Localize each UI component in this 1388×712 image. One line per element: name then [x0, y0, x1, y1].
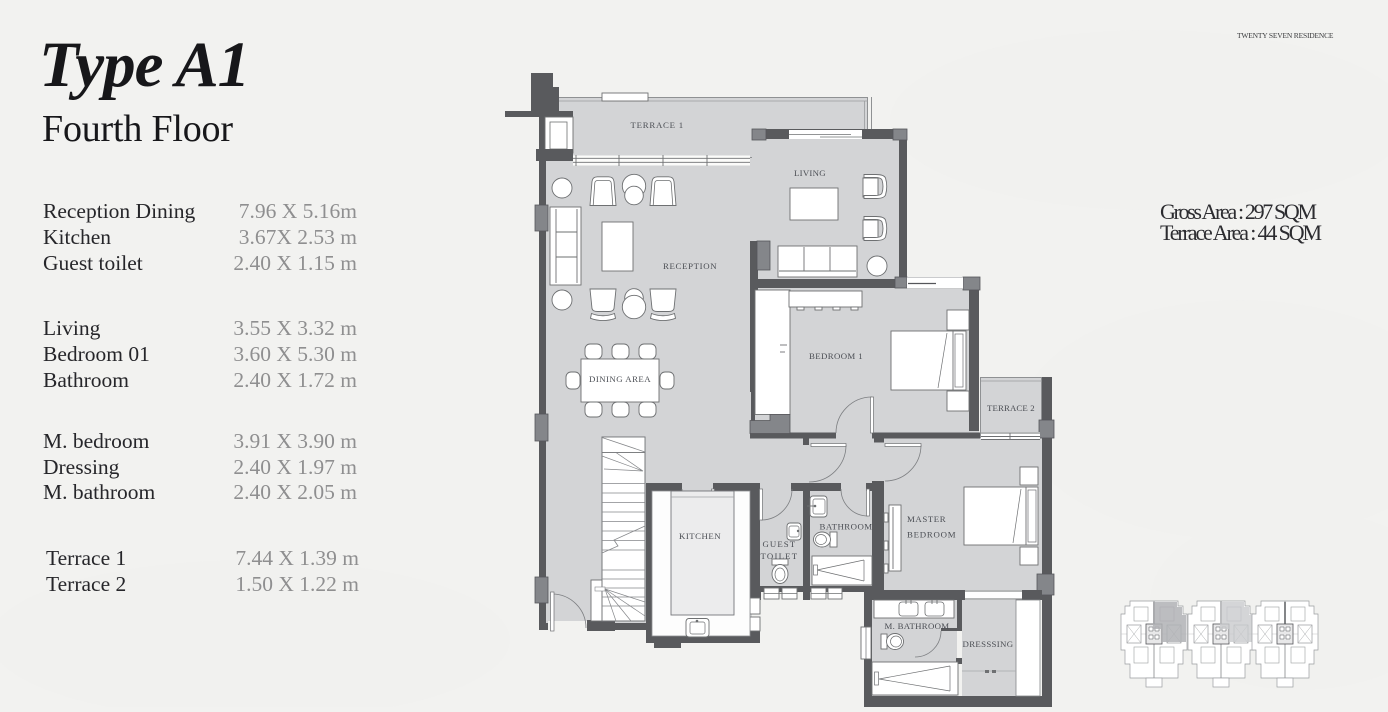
svg-text:Living: Living: [43, 316, 101, 340]
svg-text:Kitchen: Kitchen: [43, 225, 111, 249]
svg-text:DINING AREA: DINING AREA: [589, 374, 651, 384]
svg-text:1.50 X 1.22 m: 1.50 X 1.22 m: [235, 572, 359, 596]
svg-text:Dressing: Dressing: [43, 455, 120, 479]
svg-text:TERRACE 1: TERRACE 1: [631, 120, 684, 130]
svg-text:Bathroom: Bathroom: [43, 368, 129, 392]
svg-text:BEDROOM: BEDROOM: [907, 530, 956, 540]
svg-text:TERRACE 2: TERRACE 2: [987, 403, 1035, 413]
svg-text:LIVING: LIVING: [794, 168, 826, 178]
svg-text:Terrace Area : 44 SQM: Terrace Area : 44 SQM: [1160, 220, 1322, 245]
svg-text:BEDROOM 1: BEDROOM 1: [809, 351, 863, 361]
svg-text:GUEST: GUEST: [763, 539, 796, 549]
svg-text:TWENTY SEVEN RESIDENCE: TWENTY SEVEN RESIDENCE: [1237, 31, 1334, 40]
svg-text:BATHROOM: BATHROOM: [820, 522, 873, 532]
svg-text:7.96 X 5.16m: 7.96 X 5.16m: [239, 199, 358, 223]
svg-text:Terrace 2: Terrace 2: [46, 572, 126, 596]
svg-text:TOILET: TOILET: [761, 551, 798, 561]
svg-text:2.40 X 1.15 m: 2.40 X 1.15 m: [233, 251, 357, 275]
svg-text:Bedroom 01: Bedroom 01: [43, 342, 150, 366]
svg-text:KITCHEN: KITCHEN: [679, 531, 721, 541]
svg-text:MASTER: MASTER: [907, 514, 946, 524]
svg-text:DRESSSING: DRESSSING: [963, 639, 1014, 649]
svg-text:M. BATHROOM: M. BATHROOM: [885, 621, 950, 631]
svg-text:M. bedroom: M. bedroom: [43, 429, 150, 453]
svg-text:3.60 X 5.30 m: 3.60 X 5.30 m: [233, 342, 357, 366]
svg-text:Guest toilet: Guest toilet: [43, 251, 143, 275]
svg-text:2.40 X 1.72 m: 2.40 X 1.72 m: [233, 368, 357, 392]
svg-text:3.55 X 3.32 m: 3.55 X 3.32 m: [233, 316, 357, 340]
svg-text:3.91 X 3.90 m: 3.91 X 3.90 m: [233, 429, 357, 453]
svg-text:Fourth Floor: Fourth Floor: [42, 108, 233, 150]
svg-text:Type A1: Type A1: [39, 29, 249, 101]
svg-text:M. bathroom: M. bathroom: [43, 480, 156, 504]
svg-text:2.40 X 1.97 m: 2.40 X 1.97 m: [233, 455, 357, 479]
svg-text:2.40 X 2.05 m: 2.40 X 2.05 m: [233, 480, 357, 504]
svg-text:7.44 X 1.39 m: 7.44 X 1.39 m: [235, 546, 359, 570]
svg-text:RECEPTION: RECEPTION: [663, 261, 717, 271]
svg-text:Reception Dining: Reception Dining: [43, 199, 196, 223]
svg-text:3.67X 2.53 m: 3.67X 2.53 m: [239, 225, 358, 249]
svg-text:Terrace 1: Terrace 1: [46, 546, 126, 570]
